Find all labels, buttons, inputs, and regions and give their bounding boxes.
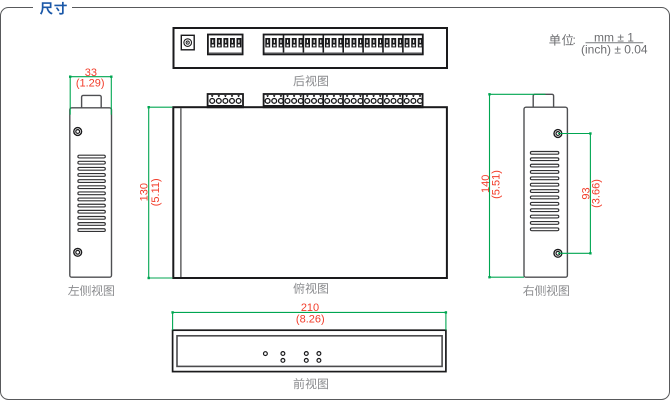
svg-text:(5.11): (5.11) [150,178,162,206]
svg-text:210: 210 [301,302,319,314]
svg-text:(5.51): (5.51) [491,170,503,199]
svg-text:(3.66): (3.66) [591,179,603,208]
svg-text:130: 130 [138,183,150,201]
svg-text:(8.26): (8.26) [296,314,325,326]
svg-text:(1.29): (1.29) [76,77,105,89]
svg-text::: : [573,33,576,47]
svg-text:(inch) ± 0.04: (inch) ± 0.04 [581,43,648,57]
